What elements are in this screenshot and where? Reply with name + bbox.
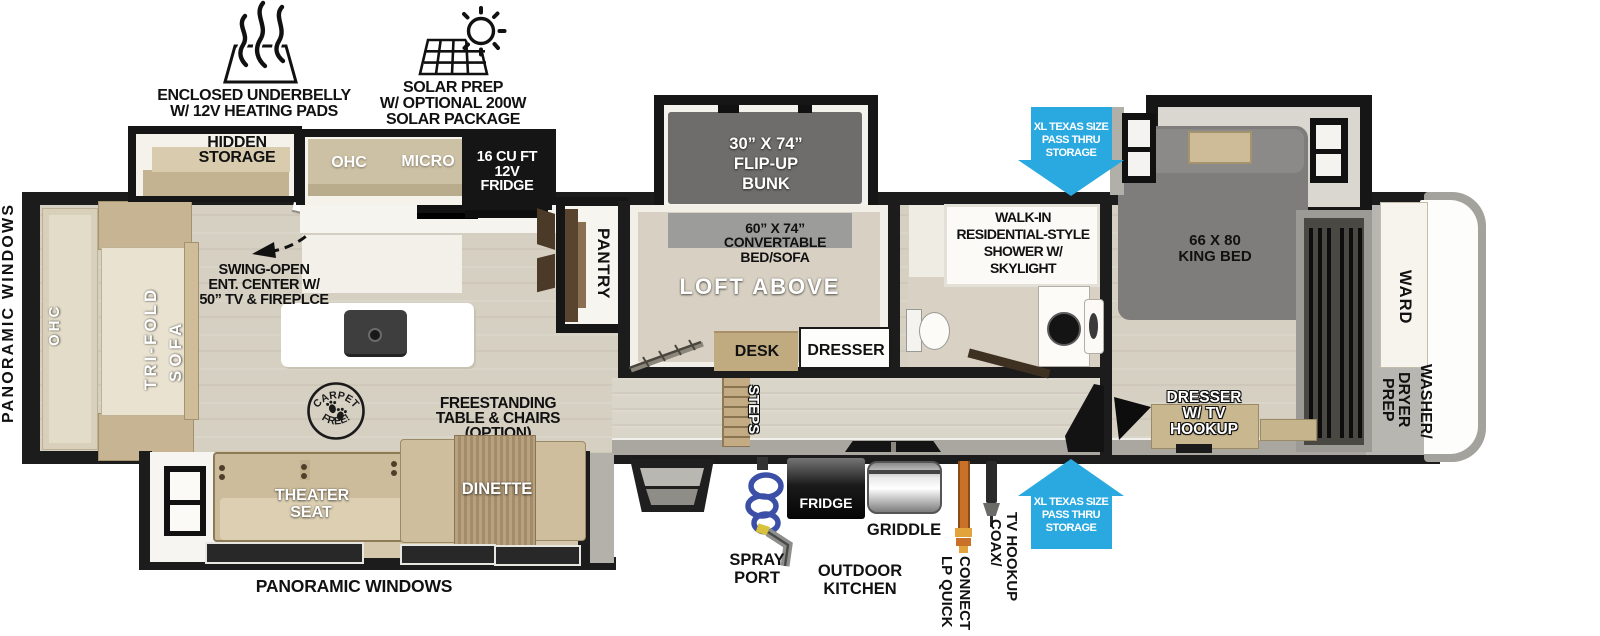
svg-text:CARPET: CARPET	[311, 389, 362, 410]
svg-text:FREE!: FREE!	[320, 412, 353, 428]
